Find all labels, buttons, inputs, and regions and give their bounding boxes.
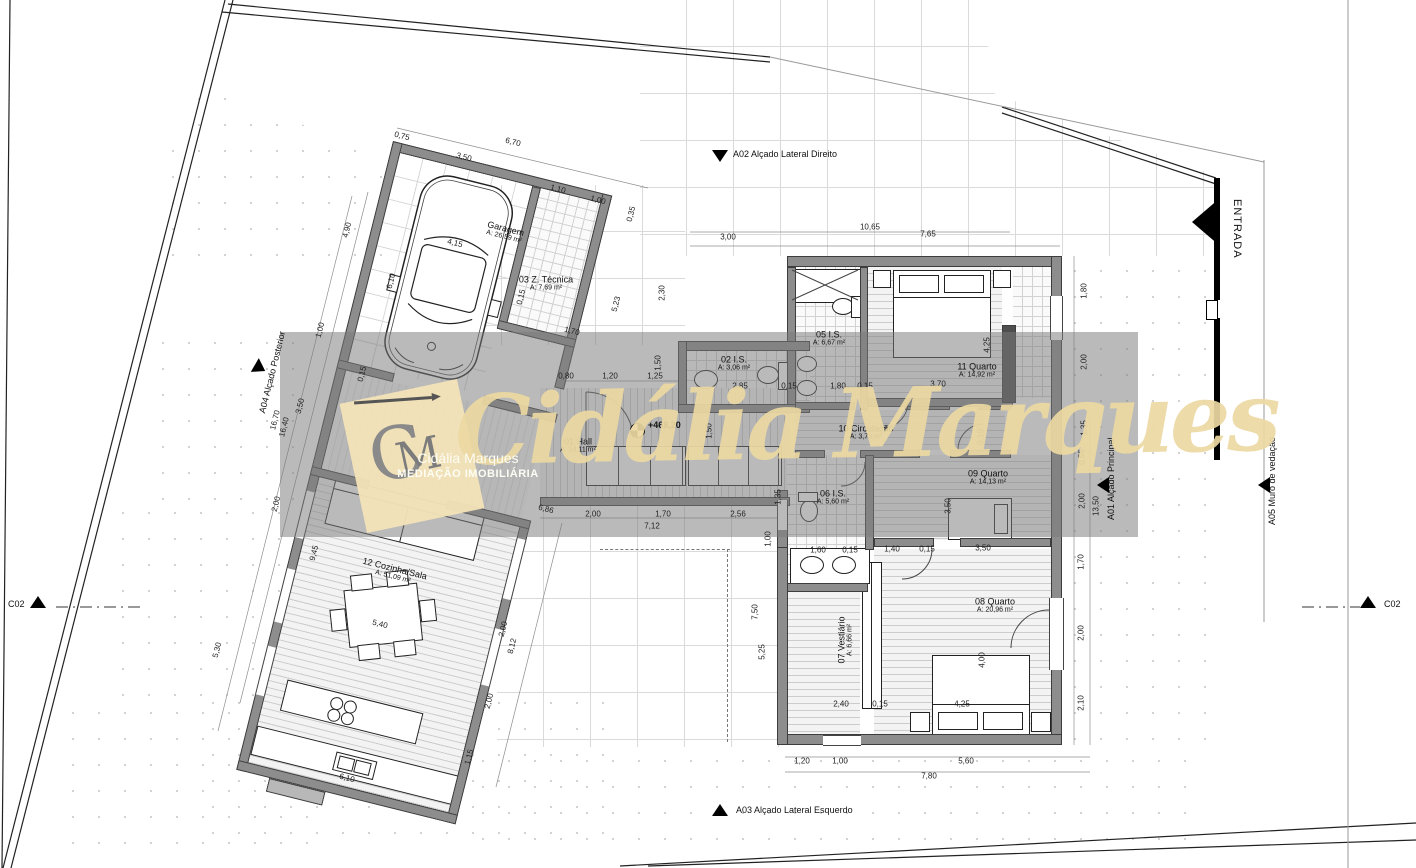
entrance-wall-lower <box>1214 318 1220 460</box>
sink-06b <box>832 556 856 574</box>
site-texture-bottom2 <box>470 748 1210 840</box>
sink-06a <box>800 556 824 574</box>
nightstand-11b <box>993 270 1011 288</box>
nightstand-08b <box>1031 712 1051 732</box>
overhang-dash-v <box>727 549 728 742</box>
marker-a03-label: A03 Alçado Lateral Esquerdo <box>736 805 853 815</box>
marker-a01-label: A01 Alçado Principal <box>1106 437 1116 520</box>
floor-plan-sheet: Cidália Marques C M Cidália Marques MEDI… <box>0 0 1416 868</box>
wing2-bottom-window <box>823 735 861 746</box>
dimension-label: 0,75 <box>393 130 410 143</box>
pencil-icon <box>354 396 432 404</box>
marker-c02-right-icon <box>1360 596 1376 608</box>
marker-a05-label: A05 Muro de vedação <box>1267 437 1277 525</box>
marker-c02-right-label: C02 <box>1384 599 1401 609</box>
level-marker-label: +468,20 <box>648 420 681 430</box>
wing2-wall-left-lower <box>777 545 788 745</box>
nightstand-11a <box>873 270 891 288</box>
vestiario-floor <box>787 592 860 734</box>
level-marker-icon <box>630 423 645 438</box>
quarto09-08-divider-a <box>874 538 934 547</box>
marker-a02-icon <box>712 150 728 162</box>
marker-c02-left-label: C02 <box>8 599 25 609</box>
brand-name: Cidália Marques <box>368 450 568 468</box>
marker-a03-icon <box>712 804 728 816</box>
marker-a02-label: A02 Alçado Lateral Direito <box>733 149 837 159</box>
site-texture-topleft <box>160 86 400 256</box>
marker-c02-left-icon <box>30 596 46 608</box>
bath06-south-wall <box>787 583 868 592</box>
entrada-arrow-icon <box>1192 198 1220 246</box>
nightstand-08a <box>910 712 930 732</box>
bed-quarto08 <box>932 655 1030 735</box>
entrada-label: ENTRADA <box>1231 199 1243 259</box>
watermark-brand-text: Cidália Marques MEDIAÇÃO IMOBILIÁRIA <box>368 450 568 481</box>
overhang-dash-h <box>600 549 730 550</box>
quarto08-right-door <box>1049 598 1064 670</box>
entrance-recess <box>1206 300 1218 320</box>
wing2-wall-bottom <box>777 734 1062 745</box>
quarto09-08-divider-b <box>960 538 1051 547</box>
dimension-label: 6,70 <box>504 136 521 149</box>
wing2-wall-top <box>787 256 1062 267</box>
brand-tagline: MEDIAÇÃO IMOBILIÁRIA <box>368 468 568 482</box>
dining-set <box>326 567 438 661</box>
